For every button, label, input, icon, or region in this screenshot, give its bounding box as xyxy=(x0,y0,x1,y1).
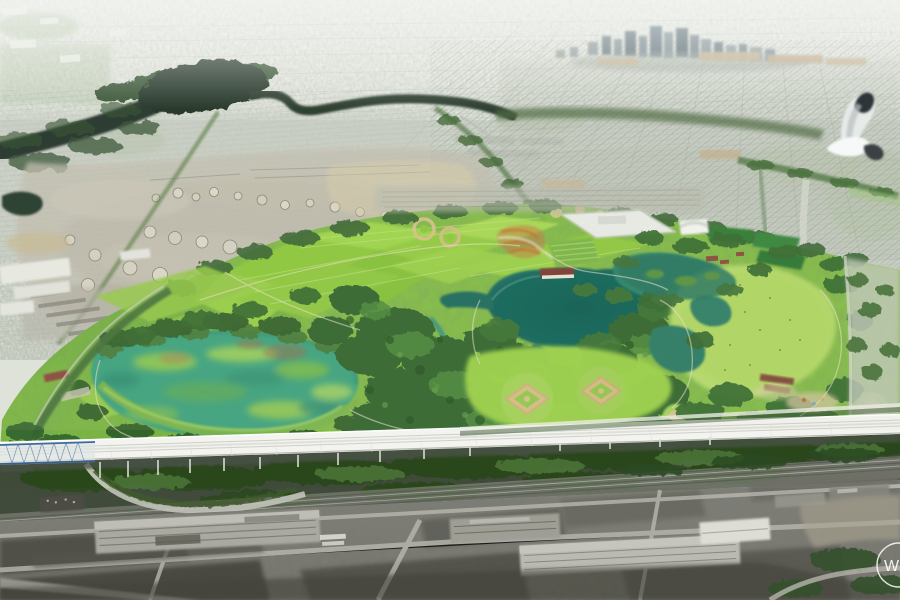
svg-text:WR: WR xyxy=(884,558,900,575)
